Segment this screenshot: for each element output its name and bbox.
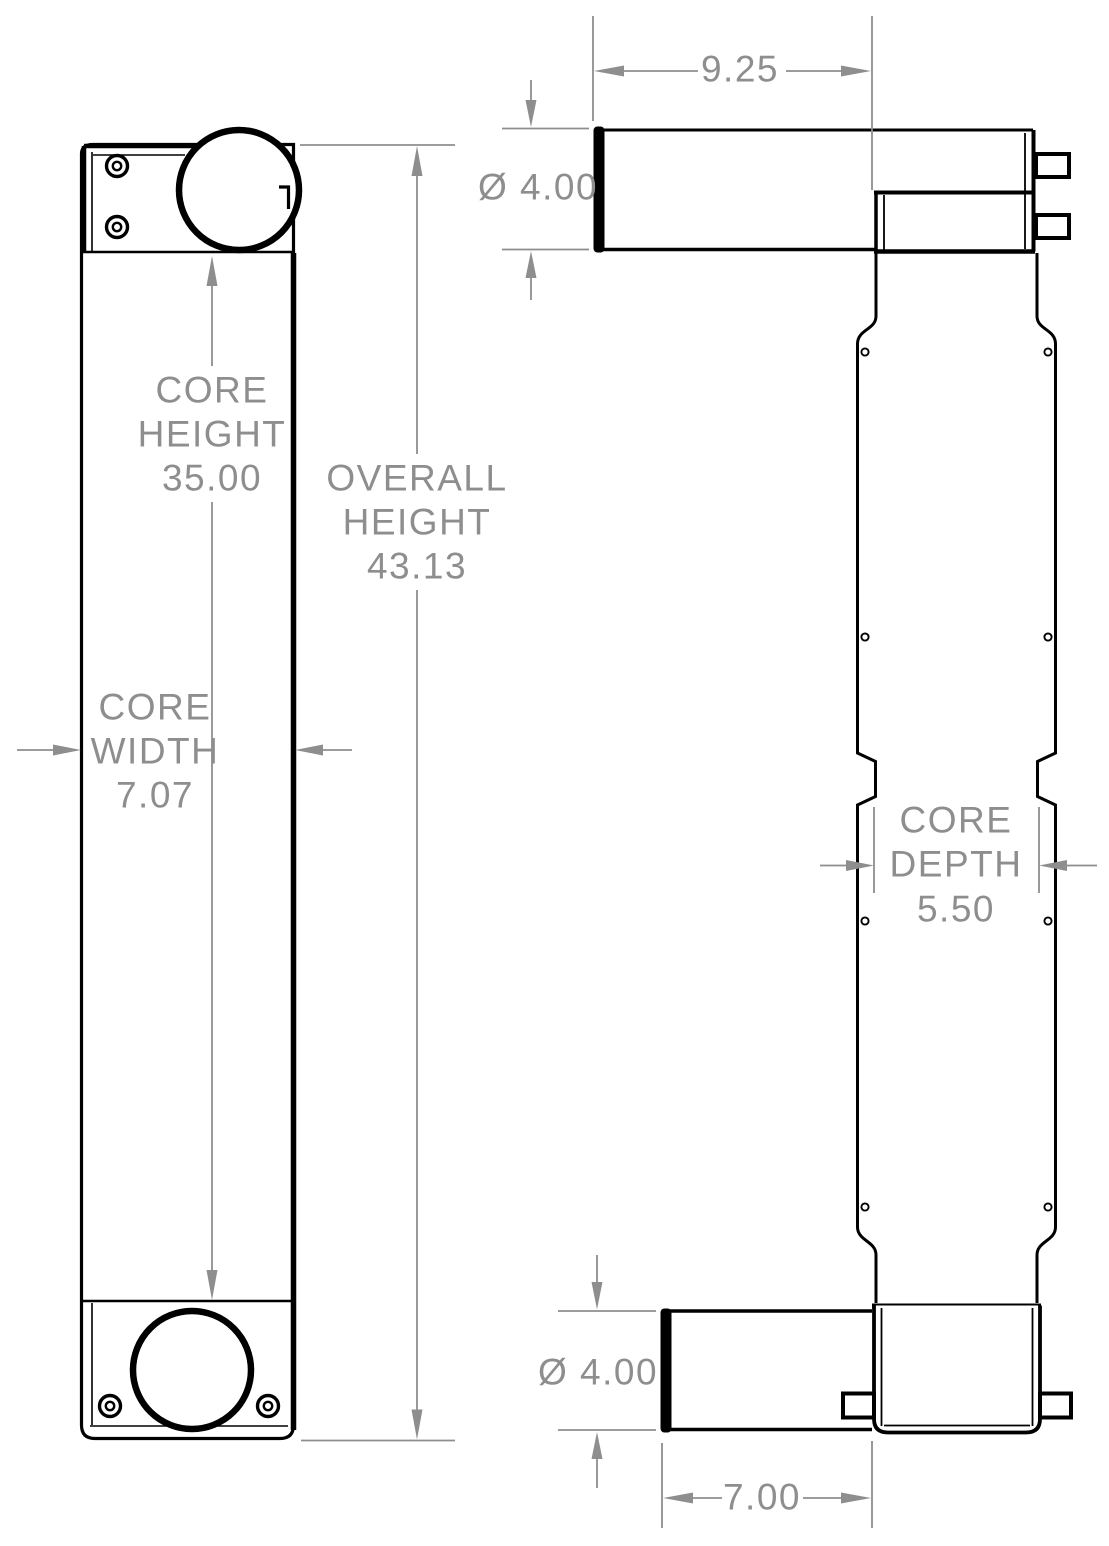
dim-core-width: CORE WIDTH 7.07	[17, 687, 352, 816]
side-bottom-pipe	[661, 1309, 873, 1433]
bottom-pipe-length-value: 7.00	[723, 1477, 801, 1518]
top-pipe-diameter-value: Ø 4.00	[478, 167, 598, 208]
side-top-tank	[874, 130, 1035, 252]
dim-overall-height: OVERALL HEIGHT 43.13	[300, 145, 508, 1441]
side-top-pipe	[594, 127, 1034, 253]
drawing-svg: CORE HEIGHT 35.00 OVERALL HEIGHT 43.13 C…	[0, 0, 1109, 1546]
overall-height-label-line2: HEIGHT	[343, 502, 492, 543]
dim-top-pipe-length: 9.25	[593, 16, 872, 190]
side-top-tab-1	[1036, 154, 1069, 177]
dim-top-pipe-diameter: Ø 4.00	[478, 80, 598, 300]
side-core-rivet-holes	[861, 348, 1051, 1210]
front-top-bolt-holes	[107, 156, 128, 238]
bottom-pipe-diameter-value: Ø 4.00	[538, 1352, 658, 1393]
side-view	[594, 127, 1072, 1433]
core-depth-label-line1: CORE	[900, 800, 1013, 841]
dim-bottom-pipe-length: 7.00	[662, 1441, 872, 1528]
front-top-port-circle	[179, 130, 299, 250]
side-core-right-profile	[1037, 253, 1056, 1303]
front-bottom-port-circle	[133, 1311, 251, 1429]
top-pipe-length-value: 9.25	[701, 49, 779, 90]
core-height-value: 35.00	[162, 458, 262, 499]
side-bottom-pipe-opening	[661, 1309, 672, 1433]
core-width-value: 7.07	[116, 775, 194, 816]
side-core-left-profile	[858, 253, 877, 1303]
core-width-label-line1: CORE	[99, 687, 212, 728]
side-top-tab-2	[1036, 215, 1069, 238]
side-bottom-tank	[872, 1306, 1041, 1433]
core-depth-label-line2: DEPTH	[890, 844, 1023, 885]
overall-height-value: 43.13	[367, 546, 467, 587]
technical-drawing-canvas: CORE HEIGHT 35.00 OVERALL HEIGHT 43.13 C…	[0, 0, 1109, 1546]
core-height-label-line2: HEIGHT	[138, 414, 287, 455]
dim-bottom-pipe-diameter: Ø 4.00	[538, 1255, 658, 1488]
core-depth-value: 5.50	[917, 889, 995, 930]
overall-height-label-line1: OVERALL	[326, 458, 507, 499]
side-bottom-tab-left	[843, 1394, 874, 1418]
core-width-label-line2: WIDTH	[91, 731, 220, 772]
side-bottom-tab-right	[1040, 1394, 1071, 1418]
core-height-label-line1: CORE	[156, 370, 269, 411]
